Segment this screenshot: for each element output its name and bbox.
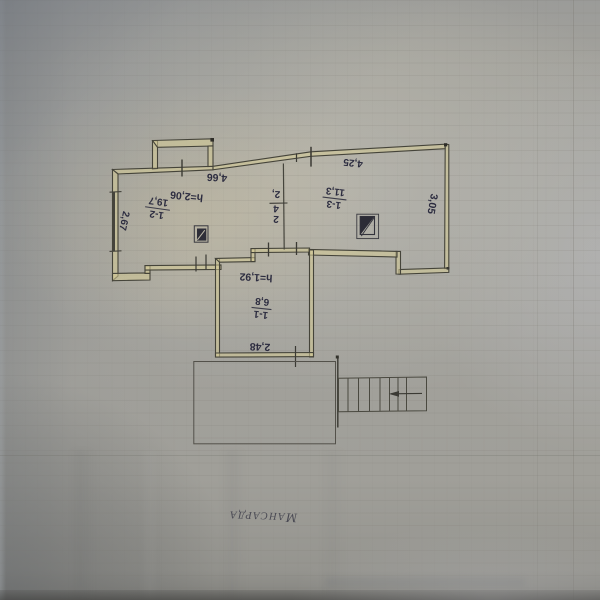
svg-text:19,7: 19,7 <box>148 194 169 208</box>
svg-text:3,05: 3,05 <box>425 193 440 215</box>
svg-text:h=1,92: h=1,92 <box>239 270 273 284</box>
svg-text:2,48: 2,48 <box>249 340 270 353</box>
svg-text:2: 2 <box>273 213 280 224</box>
svg-text:2,: 2, <box>271 188 280 199</box>
svg-text:6,8: 6,8 <box>254 295 269 307</box>
svg-text:4: 4 <box>273 202 280 213</box>
svg-text:4,25: 4,25 <box>342 156 363 169</box>
svg-text:h=2,06: h=2,06 <box>169 188 203 203</box>
svg-text:4,66: 4,66 <box>206 171 227 184</box>
svg-text:МАНСАРДА: МАНСАРДА <box>229 508 299 525</box>
svg-text:11,3: 11,3 <box>325 184 346 197</box>
svg-text:1-1: 1-1 <box>253 308 269 320</box>
